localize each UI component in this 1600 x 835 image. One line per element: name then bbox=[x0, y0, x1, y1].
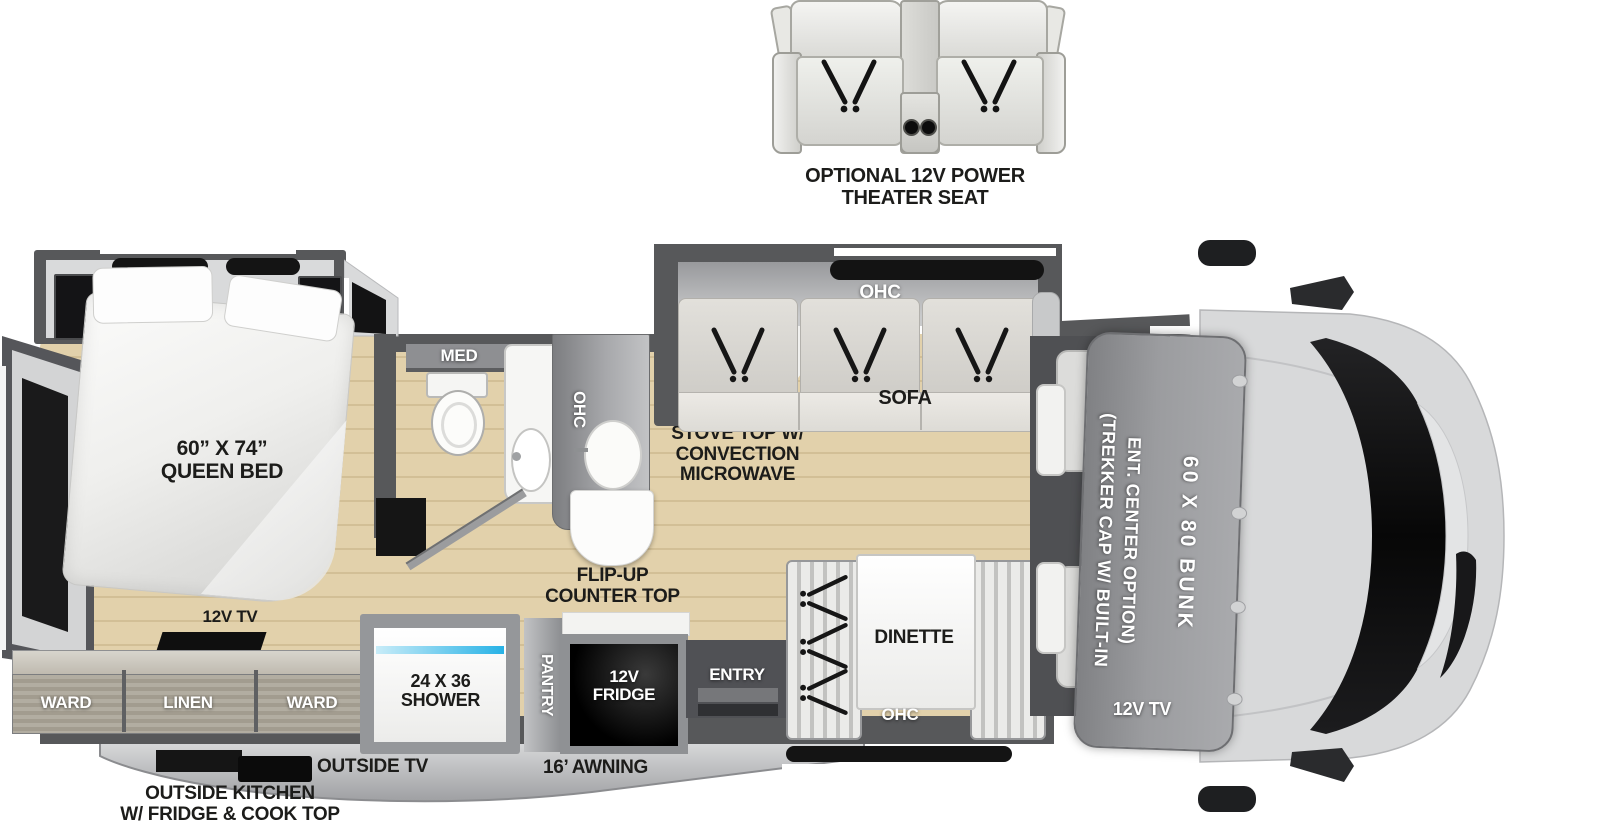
ward-cabinet-right-label: WARD bbox=[262, 694, 362, 712]
linen-cabinet-label: LINEN bbox=[138, 694, 238, 712]
sink-handle-icon bbox=[574, 448, 588, 452]
seat-stitch-icon bbox=[954, 58, 1024, 114]
kitchen-sink bbox=[584, 420, 642, 490]
med-cabinet-label: MED bbox=[406, 347, 512, 365]
front-tire-icon bbox=[1198, 240, 1256, 266]
cabinet-divider bbox=[254, 670, 258, 732]
fridge-counter bbox=[562, 612, 690, 636]
ward-cabinet-left-label: WARD bbox=[16, 694, 116, 712]
seat-stitch-icon bbox=[828, 326, 892, 386]
bed-label: 60” X 74” QUEEN BED bbox=[122, 438, 322, 483]
slide-awning-rail bbox=[782, 764, 1012, 770]
flip-up-counter bbox=[570, 490, 654, 566]
seat-stitch-icon bbox=[950, 326, 1014, 386]
fridge-label: 12V FRIDGE bbox=[570, 668, 678, 705]
front-tire-icon bbox=[1198, 786, 1256, 812]
dinette-label: DINETTE bbox=[856, 628, 972, 649]
side-mirror-icon bbox=[1290, 276, 1354, 310]
sofa-slideout-wall-left bbox=[654, 244, 678, 426]
sofa-seat-divider bbox=[798, 392, 800, 430]
pantry-label: PANTRY bbox=[533, 632, 555, 738]
seat-stitch-icon bbox=[706, 326, 770, 386]
bedroom-tv-label: 12V TV bbox=[180, 608, 280, 626]
seat-stitch-icon bbox=[797, 664, 849, 720]
cupholder-icon bbox=[903, 119, 920, 136]
pillow bbox=[92, 266, 213, 324]
slide-window-bar bbox=[830, 260, 1044, 280]
toilet-bowl-ring bbox=[441, 402, 477, 448]
sofa bbox=[678, 298, 1042, 430]
bunk-size-label: 60 X 80 BUNK bbox=[1161, 336, 1205, 749]
outside-kitchen-door bbox=[156, 750, 242, 772]
side-mirror-icon bbox=[1290, 748, 1354, 782]
outside-kitchen-label: OUTSIDE KITCHEN W/ FRIDGE & COOK TOP bbox=[80, 784, 380, 825]
theater-seat-label: OPTIONAL 12V POWER THEATER SEAT bbox=[735, 166, 1095, 209]
sofa-seat bbox=[678, 392, 1044, 432]
slide-awning-rail bbox=[834, 248, 1056, 256]
awning-label: 16’ AWNING bbox=[508, 758, 683, 779]
sofa-label: SOFA bbox=[865, 388, 945, 410]
cupholder-icon bbox=[920, 119, 937, 136]
theater-seat-back-right bbox=[934, 0, 1048, 64]
dinette-ohc-label: OHC bbox=[860, 706, 940, 724]
theater-seat-back-left bbox=[790, 0, 904, 64]
rivet-icon bbox=[1231, 374, 1247, 388]
entry-step bbox=[698, 688, 778, 702]
theater-seat bbox=[772, 0, 1064, 162]
flip-up-counter-label: FLIP-UP COUNTER TOP bbox=[525, 566, 700, 607]
bedroom-cabinets bbox=[12, 650, 370, 732]
entry-step bbox=[698, 704, 778, 716]
stove-label: STOVE TOP W/ CONVECTION MICROWAVE bbox=[645, 424, 830, 486]
cab-seat-back bbox=[1036, 384, 1066, 476]
outside-tv-label: OUTSIDE TV bbox=[300, 757, 445, 778]
entry-label: ENTRY bbox=[686, 666, 788, 684]
dinette-window-bar bbox=[786, 746, 1012, 762]
slide-awning-rail bbox=[100, 246, 296, 254]
rv-floorplan: OPTIONAL 12V POWER THEATER SEAT 60” X 74… bbox=[0, 0, 1600, 835]
seat-stitch-icon bbox=[814, 58, 884, 114]
ohc-cabinet-label: OHC bbox=[566, 374, 588, 444]
bunk-overlay: (TREKKER CAP W/ BUILT-IN ENT. CENTER OPT… bbox=[1073, 331, 1247, 752]
faucet-icon bbox=[512, 452, 521, 461]
cab-seat-back bbox=[1036, 562, 1066, 654]
shower-glass bbox=[376, 646, 504, 654]
bed-foot-cabinet bbox=[376, 498, 426, 556]
front-tv-label: 12V TV bbox=[1092, 700, 1192, 719]
shower-label: 24 X 36 SHOWER bbox=[368, 672, 513, 711]
cabinet-divider bbox=[122, 670, 126, 732]
cabinet-top-face bbox=[12, 650, 372, 676]
